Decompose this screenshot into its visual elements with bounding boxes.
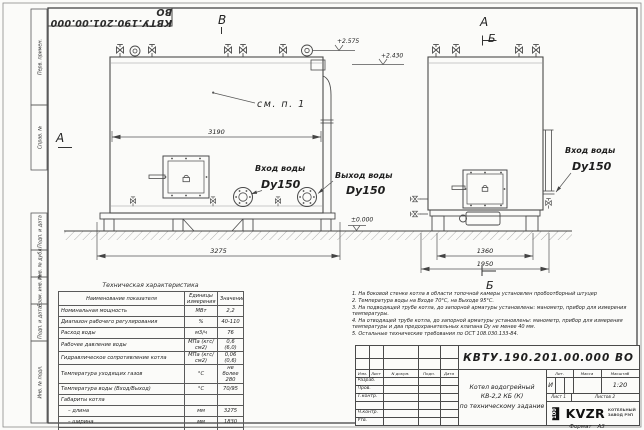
logo-subtitle: КОТЕЛЬНЫЙ ЗАВОД РЭП <box>608 408 636 418</box>
top-flange <box>130 46 140 56</box>
logo-name: KVZR <box>566 406 605 421</box>
table-row: Температура воды (Вход/Выход)°С70/95 <box>59 384 244 395</box>
dimension-texts: 3190 3275 1360 1950 <box>208 128 493 268</box>
title-block: КВТУ.190.201.00.000 ВО Изм. Лист N докум… <box>355 345 640 426</box>
note-item: 3. На подводящей трубе котла, до запорно… <box>352 305 640 318</box>
dim-3275: 3275 <box>210 247 227 255</box>
tech-table-title: Техническая характеристика <box>58 282 243 289</box>
table-row: Расход водым3/ч76 <box>59 328 244 339</box>
elevation-marks <box>313 45 404 231</box>
doc-designation: КВТУ.190.201.00.000 ВО <box>458 346 639 369</box>
valve-icon <box>516 45 523 58</box>
margin-label: Подп. и дата <box>38 306 44 339</box>
valve-icon <box>533 45 540 58</box>
inlet-front-dn: Dy150 <box>261 178 301 191</box>
margin-label: Перв. примен. <box>38 39 44 75</box>
table-row: Диапазон рабочего регулирования%40-110 <box>59 317 244 328</box>
valve-icon <box>149 45 156 58</box>
inlet-side-label: Вход воды <box>565 146 616 155</box>
drain-valve-icon <box>210 197 215 206</box>
note-item: 1. На боковой стенке котла в области топ… <box>352 291 640 297</box>
front-base <box>100 213 335 231</box>
note-item: 2. Температура воды на Входе 70°С, на Вы… <box>352 298 640 304</box>
table-row: – ширинамм1830 <box>59 417 244 428</box>
table-row: Габариты котла <box>59 395 244 406</box>
factory-logo: 100 KVZR КОТЕЛЬНЫЙ ЗАВОД РЭП <box>546 401 639 425</box>
doc-name-line3: по техническому задание <box>460 402 545 412</box>
water-outlet-flange <box>298 188 317 207</box>
inlet-side-dn: Dy150 <box>572 160 612 173</box>
margin-label: Взам. инв. № <box>38 274 44 307</box>
see-note-label: см. п. 1 <box>257 99 306 110</box>
row-nkontr: Н.контр. <box>358 409 384 417</box>
section-v: В <box>218 13 226 27</box>
table-row: Гидравлическое сопротивление котлаМПа (к… <box>59 352 244 365</box>
valve-icon <box>453 45 460 58</box>
col-units: Единицы измерения <box>185 292 218 306</box>
valve-icon <box>280 45 287 58</box>
note-item: 5. Остальные технические требования по О… <box>352 331 640 337</box>
margin-label: Подп. и дата <box>38 215 44 248</box>
col-parameter: Наименование показателя <box>59 292 185 306</box>
col-podp: Подп. <box>418 369 440 377</box>
valve-icon <box>433 45 440 58</box>
lit-value: И <box>546 377 555 393</box>
col-izm: Изм. <box>356 369 369 377</box>
sheets-cell: Листов 2 <box>571 393 639 401</box>
doc-name-line1: Котел водогрейный <box>470 383 535 393</box>
drawing-sheet: Перв. примен. Справ. № Подп. и дата Инв.… <box>0 0 644 430</box>
table-row: Рабочее давление водыМПа (кгс/см2)0,6 (6… <box>59 339 244 352</box>
col-value: Значение <box>218 292 244 306</box>
valve-icon <box>240 45 247 58</box>
table-row: – длинамм3275 <box>59 406 244 417</box>
sheet-cell: Лист 1 <box>546 393 571 401</box>
side-inlet-valve-icon <box>546 199 552 209</box>
elevation-mid: +2.430 <box>381 53 403 60</box>
section-a-right: А <box>479 15 488 29</box>
side-base <box>430 210 540 231</box>
elevation-zero: ±0.000 <box>351 217 373 224</box>
row-tkontr: Т.контр. <box>358 393 384 401</box>
section-b-right: Б <box>488 32 496 45</box>
outlet-label: Выход воды <box>335 171 393 180</box>
table-row: Температура уходящих газов°Сне более 280 <box>59 365 244 384</box>
logo-mark-icon: 100 <box>552 406 559 419</box>
water-inlet-flange <box>234 188 253 207</box>
valve-icon <box>225 45 232 58</box>
format-value: А3 <box>598 424 605 430</box>
margin-labels: Перв. примен. Справ. № Подп. и дата Инв.… <box>38 39 44 399</box>
margin-label: Справ. № <box>38 126 44 149</box>
col-data: Дата <box>440 369 458 377</box>
section-a-left: А <box>55 131 64 145</box>
ground-line <box>64 231 572 240</box>
col-dokum: N докум. <box>383 369 418 377</box>
row-utv: Утв. <box>358 417 384 425</box>
dim-1360: 1360 <box>477 247 494 255</box>
callout-texts: см. п. 1 Вход воды Dy150 Выход воды Dy15… <box>255 99 616 197</box>
side-valve-icon <box>411 196 421 202</box>
row-razrab: Разраб. <box>358 377 384 385</box>
doc-name-line2: КВ-2,2 КБ (К) <box>481 392 524 402</box>
scale-label: Масштаб <box>601 369 639 377</box>
side-inlet-pipe <box>543 130 555 194</box>
col-list: Лист <box>369 369 383 377</box>
drain-valve-icon <box>130 197 135 206</box>
side-valve-icon <box>411 211 421 217</box>
lit-label: Лит. <box>546 369 573 377</box>
mass-label: Масса <box>573 369 601 377</box>
drain-valve-icon <box>275 197 280 206</box>
burner <box>466 212 500 225</box>
row-prov: Пров. <box>358 385 384 393</box>
inlet-front-label: Вход воды <box>255 164 306 173</box>
tech-table-header: Наименование показателя Единицы измерени… <box>59 292 244 306</box>
margin-label: Инв. № подл. <box>38 365 44 398</box>
sheets-total: 2 <box>612 395 615 400</box>
elevation-top: +2.575 <box>337 38 359 45</box>
dim-1950: 1950 <box>477 260 494 268</box>
sheet-number: 1 <box>563 395 566 400</box>
boiler-side-view <box>411 45 555 232</box>
tech-table: Наименование показателя Единицы измерени… <box>58 291 244 430</box>
boiler-front-view <box>100 45 335 232</box>
top-flange <box>302 45 313 56</box>
outlet-dn: Dy150 <box>346 184 386 197</box>
front-door <box>149 156 209 198</box>
table-row: Номинальная мощностьМВт2,2 <box>59 306 244 317</box>
notes-block: 1. На боковой стенке котла в области топ… <box>352 291 640 337</box>
side-door <box>452 170 507 208</box>
scale-value: 1:20 <box>601 377 639 393</box>
doc-name: Котел водогрейный КВ-2,2 КБ (К) по техни… <box>458 369 546 425</box>
valve-icon <box>117 45 124 58</box>
format-label: ФорматА3 <box>552 424 622 430</box>
dim-3190: 3190 <box>208 128 225 136</box>
section-labels: В А А Б Б <box>55 13 496 292</box>
note-item: 4. На отводящей трубе котла, до запорной… <box>352 318 640 331</box>
rotated-designation-stamp: КВТУ.190.201.00.000 ВО <box>48 8 172 26</box>
